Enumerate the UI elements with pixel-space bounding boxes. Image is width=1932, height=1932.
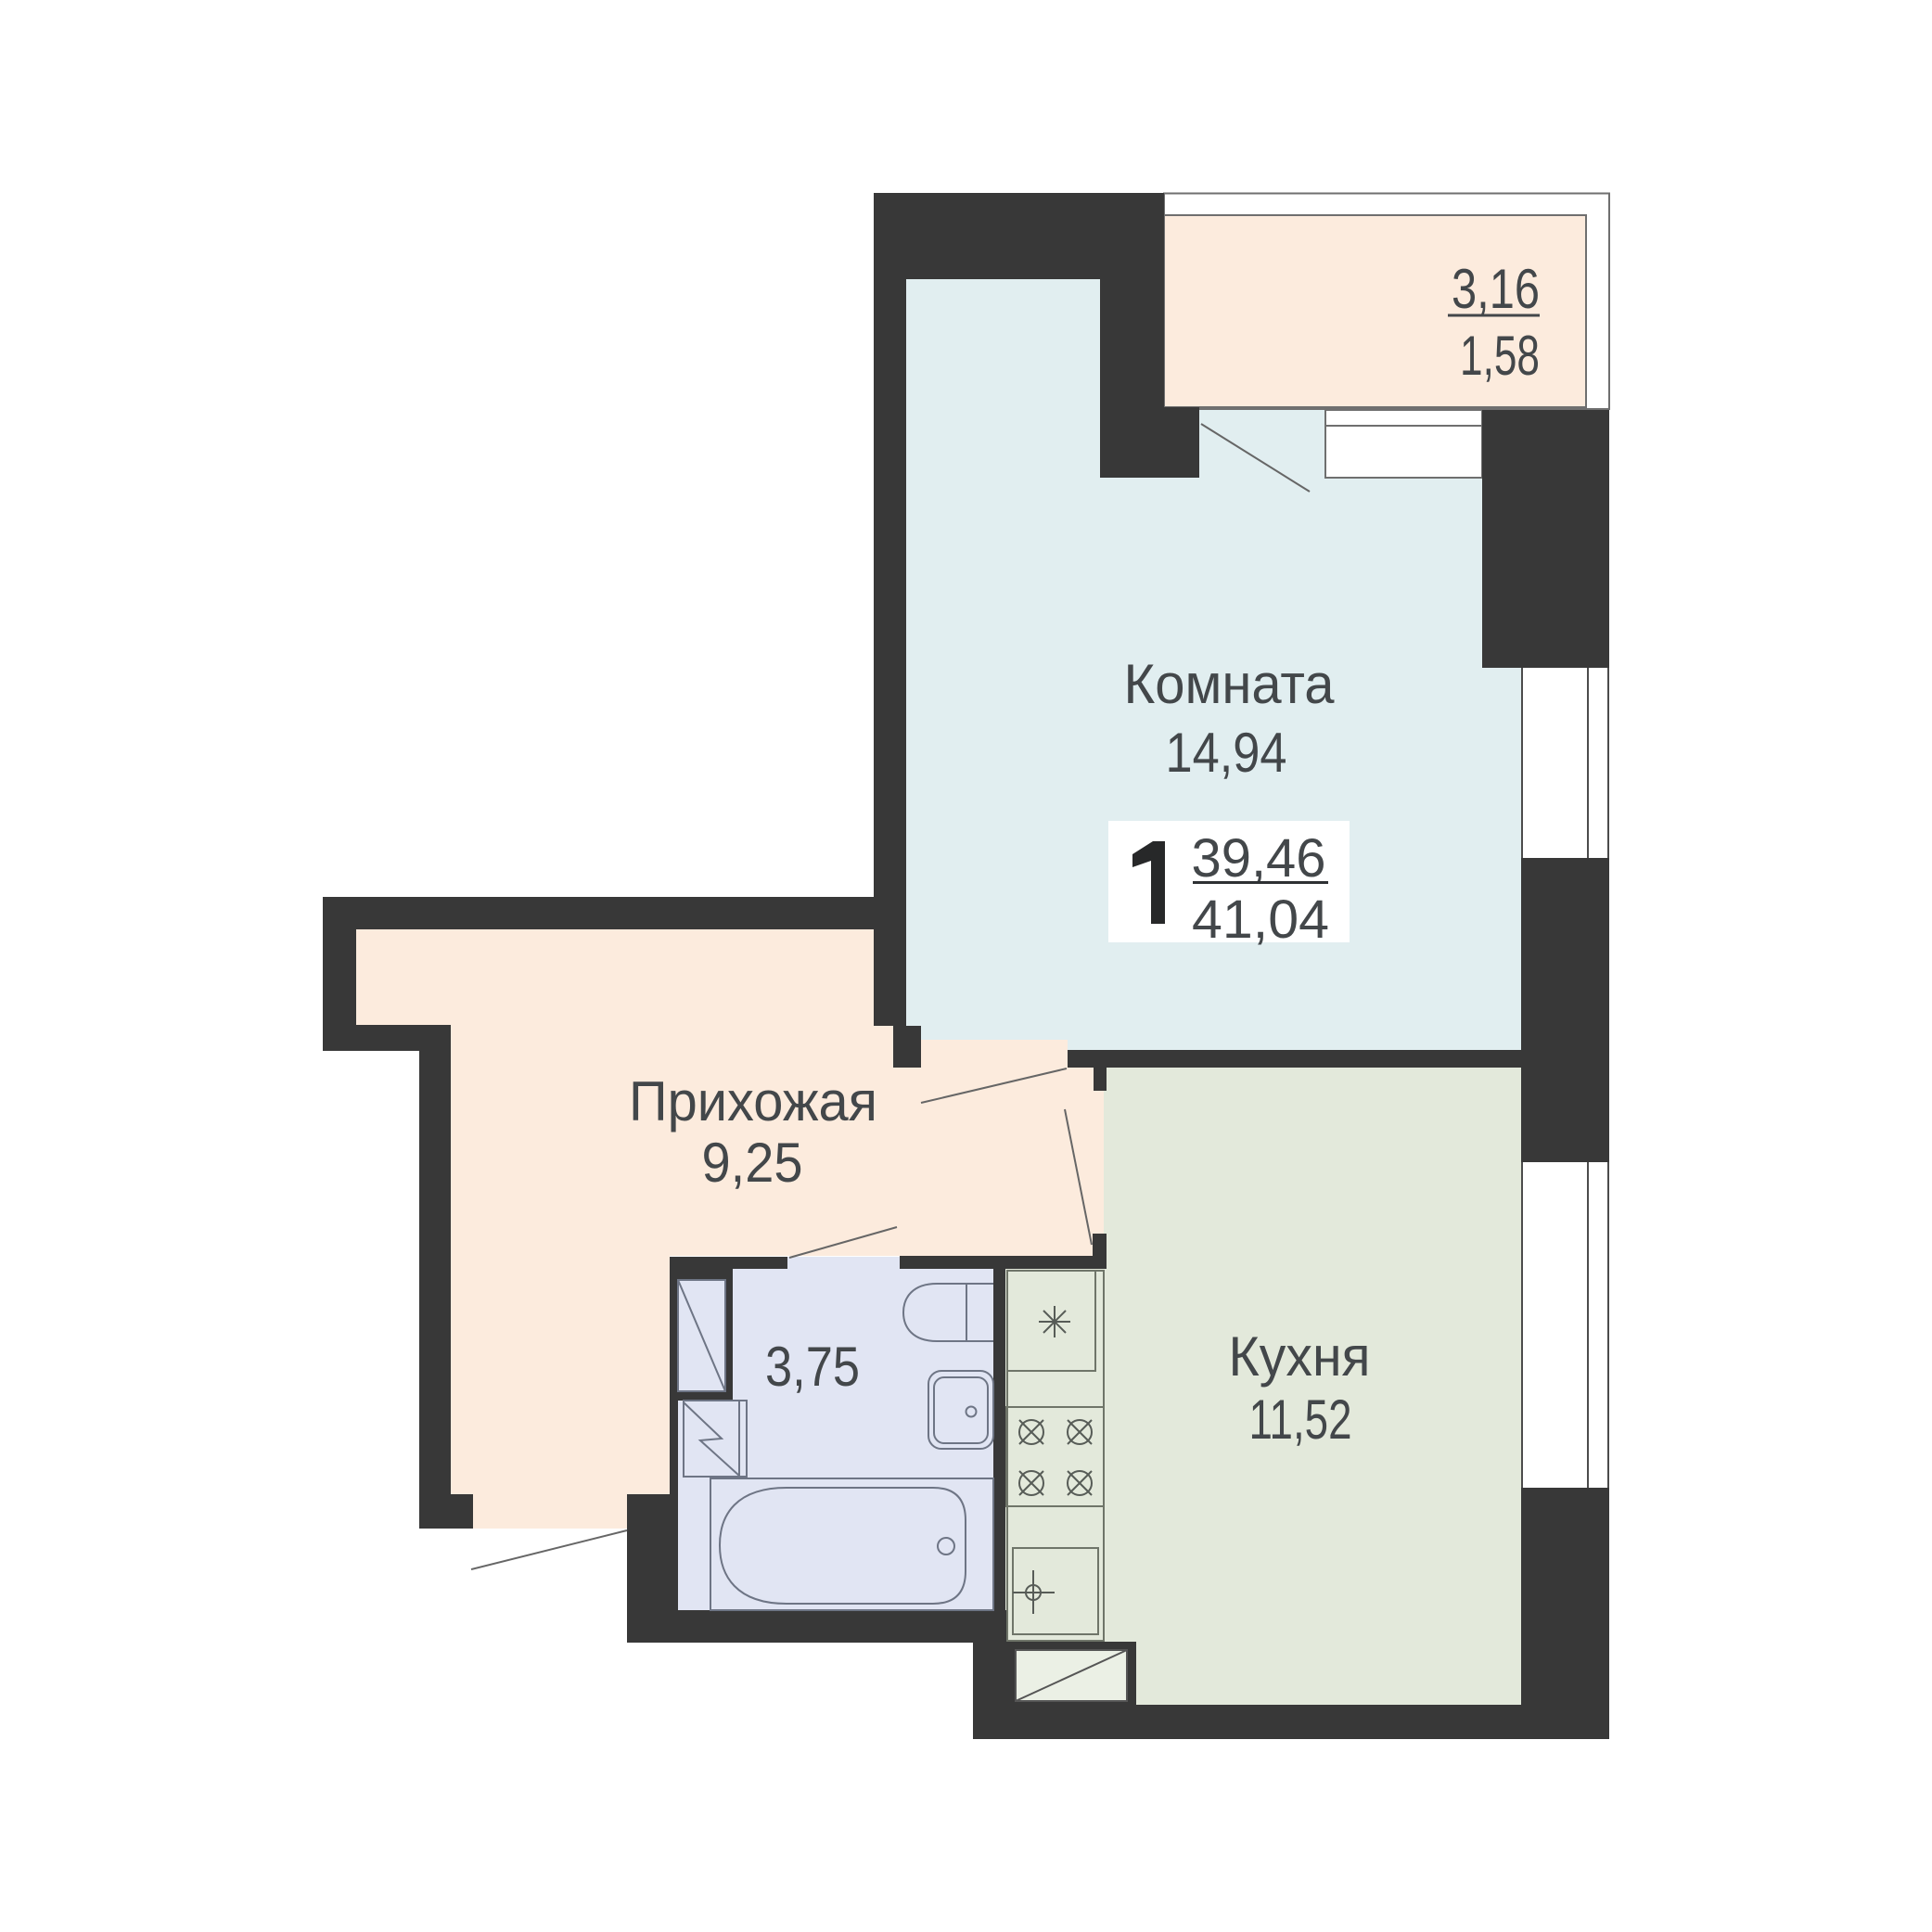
svg-text:14,94: 14,94 [1166, 722, 1287, 784]
svg-text:11,52: 11,52 [1249, 1388, 1352, 1451]
svg-text:Комната: Комната [1124, 653, 1336, 715]
svg-text:41,04: 41,04 [1192, 889, 1329, 950]
svg-text:Прихожая: Прихожая [629, 1070, 877, 1132]
svg-text:39,46: 39,46 [1192, 828, 1326, 889]
svg-text:3,75: 3,75 [765, 1336, 860, 1398]
svg-text:Кухня: Кухня [1229, 1325, 1371, 1388]
svg-text:9,25: 9,25 [702, 1132, 803, 1194]
svg-text:3,16: 3,16 [1452, 258, 1540, 320]
svg-text:1,58: 1,58 [1460, 325, 1540, 387]
